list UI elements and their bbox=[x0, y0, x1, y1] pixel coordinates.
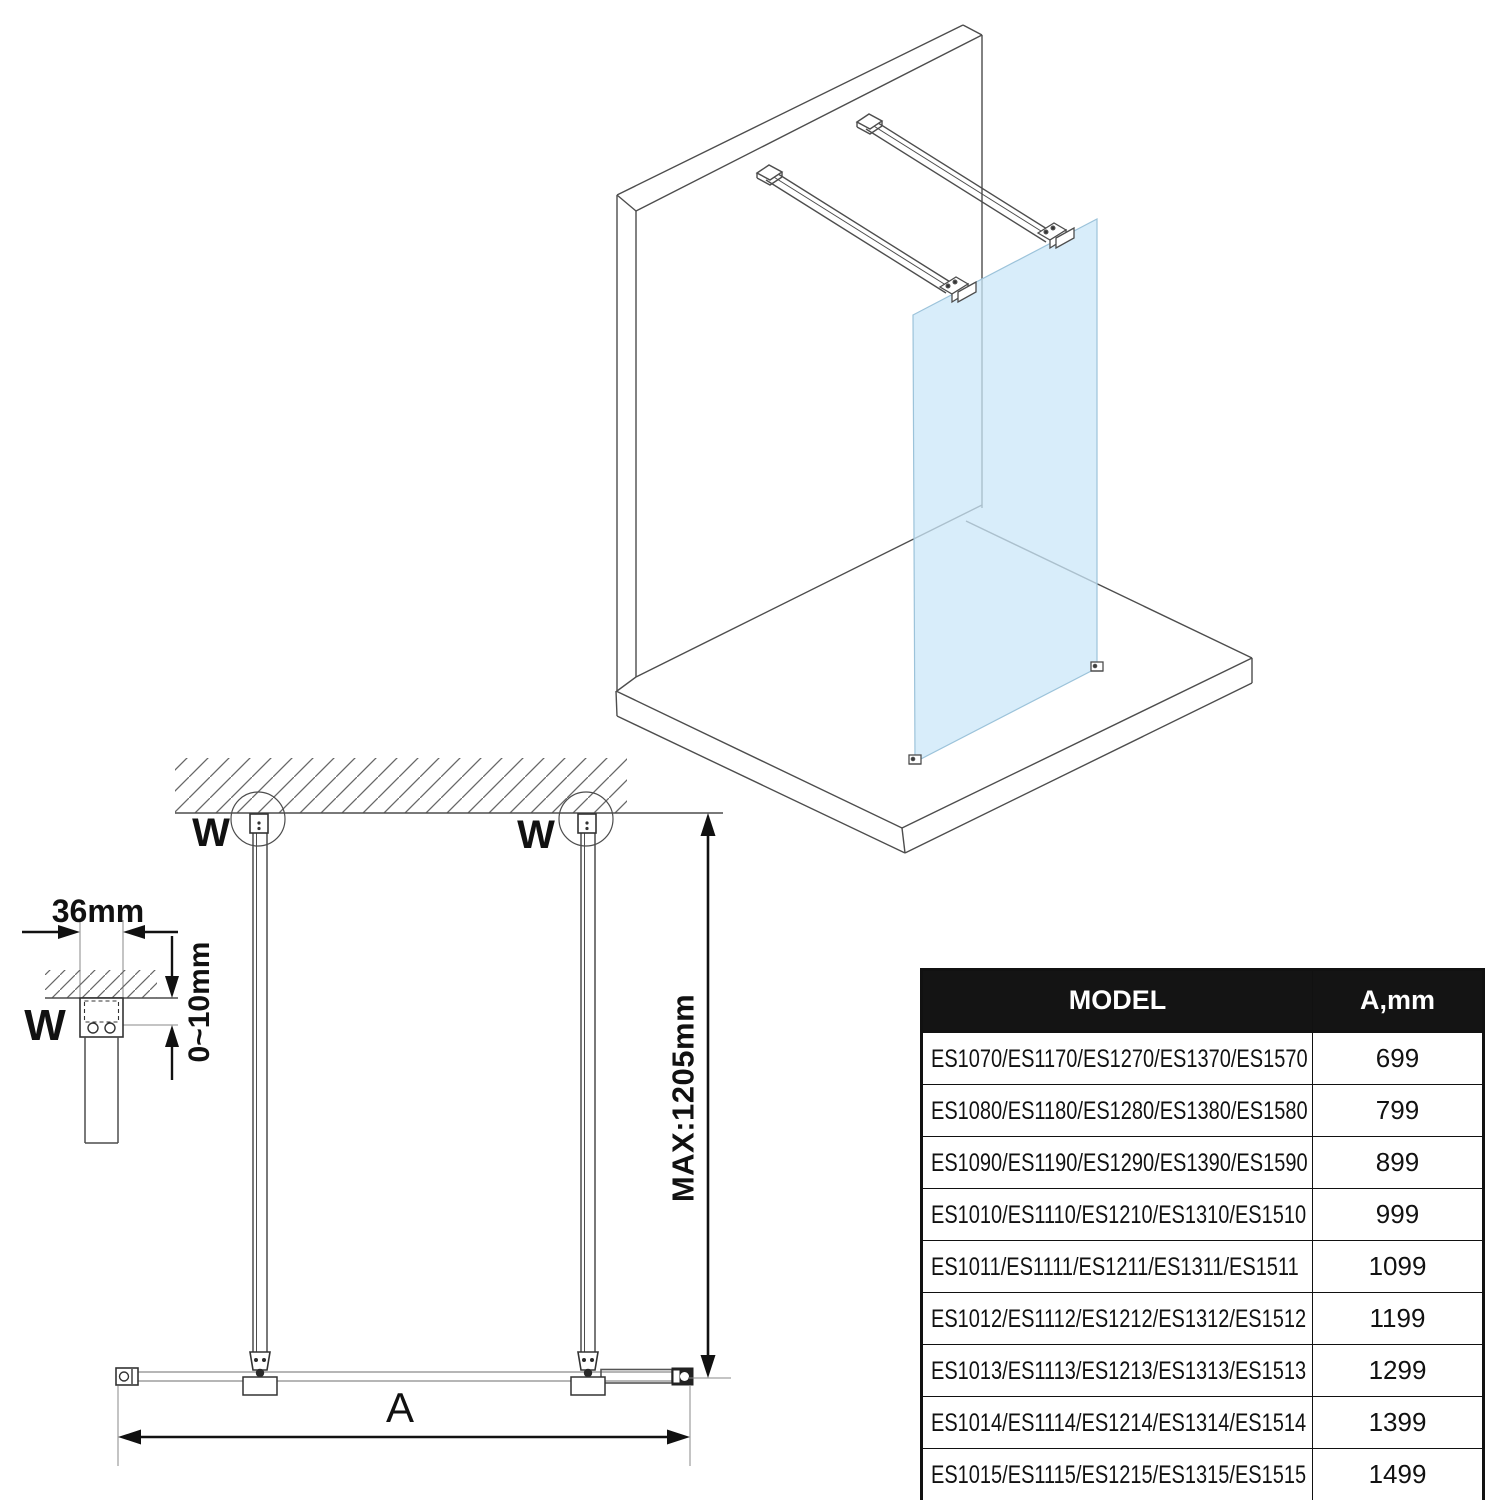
table-header-a-mm: A,mm bbox=[1313, 970, 1484, 1032]
wall-marker-detail: W bbox=[24, 1004, 66, 1048]
shower-screen-spec-sheet: W W W 36mm 0~10mm MAX:1205mm A MODEL A,m… bbox=[0, 0, 1500, 1500]
iso-glass-panel bbox=[913, 219, 1097, 762]
a-value-cell: 1099 bbox=[1313, 1241, 1484, 1293]
model-cell: ES1014/ES1114/ES1214/ES1314/ES1514 bbox=[922, 1397, 1313, 1449]
model-cell: ES1010/ES1110/ES1210/ES1310/ES1510 bbox=[922, 1189, 1313, 1241]
table-header-row: MODEL A,mm bbox=[922, 970, 1484, 1032]
table-row: ES1012/ES1112/ES1212/ES1312/ES1512 1199 bbox=[922, 1293, 1484, 1345]
model-cell: ES1070/ES1170/ES1270/ES1370/ES1570 bbox=[922, 1032, 1313, 1085]
plan-wall-hatch bbox=[175, 758, 627, 813]
plan-support-bar-1 bbox=[253, 833, 267, 1352]
table-row: ES1010/ES1110/ES1210/ES1310/ES1510 999 bbox=[922, 1189, 1484, 1241]
model-cell: ES1012/ES1112/ES1212/ES1312/ES1512 bbox=[922, 1293, 1313, 1345]
a-value-cell: 899 bbox=[1313, 1137, 1484, 1189]
detail-bar bbox=[85, 1037, 118, 1143]
detail-wall-hatch bbox=[45, 970, 157, 998]
detail-dim-gap bbox=[123, 936, 179, 1080]
model-cell: ES1015/ES1115/ES1215/ES1315/ES1515 bbox=[922, 1449, 1313, 1500]
dim-label-ceiling-gap: 0~10mm bbox=[185, 942, 215, 1063]
table-header-model: MODEL bbox=[922, 970, 1313, 1032]
model-cell: ES1080/ES1180/ES1280/ES1380/ES1580 bbox=[922, 1085, 1313, 1137]
model-cell: ES1013/ES1113/ES1213/ES1313/ES1513 bbox=[922, 1345, 1313, 1397]
model-cell: ES1090/ES1190/ES1290/ES1390/ES1590 bbox=[922, 1137, 1313, 1189]
plan-wall-bracket-2 bbox=[578, 814, 596, 833]
table-row: ES1080/ES1180/ES1280/ES1380/ES1580 799 bbox=[922, 1085, 1484, 1137]
plan-view bbox=[116, 758, 731, 1466]
a-value-cell: 799 bbox=[1313, 1085, 1484, 1137]
dim-label-width-A: A bbox=[386, 1387, 414, 1429]
iso-support-bar-near bbox=[757, 165, 951, 293]
table-row: ES1070/ES1170/ES1270/ES1370/ES1570 699 bbox=[922, 1032, 1484, 1085]
a-value-cell: 1399 bbox=[1313, 1397, 1484, 1449]
plan-support-bar-2 bbox=[581, 833, 595, 1352]
plan-left-end-cap bbox=[116, 1368, 138, 1385]
table-row: ES1090/ES1190/ES1290/ES1390/ES1590 899 bbox=[922, 1137, 1484, 1189]
plan-glass-clamp-1 bbox=[243, 1352, 277, 1395]
iso-view bbox=[616, 25, 1252, 853]
dim-label-max-height: MAX:1205mm bbox=[668, 994, 699, 1202]
iso-support-bar-far bbox=[857, 114, 1051, 242]
model-cell: ES1011/ES1111/ES1211/ES1311/ES1511 bbox=[922, 1241, 1313, 1293]
wall-marker-plan-1: W bbox=[192, 813, 230, 853]
a-value-cell: 999 bbox=[1313, 1189, 1484, 1241]
plan-wall-bracket-1 bbox=[250, 814, 268, 833]
table-row: ES1011/ES1111/ES1211/ES1311/ES1511 1099 bbox=[922, 1241, 1484, 1293]
model-size-table: MODEL A,mm ES1070/ES1170/ES1270/ES1370/E… bbox=[920, 968, 1485, 1500]
table-row: ES1015/ES1115/ES1215/ES1315/ES1515 1499 bbox=[922, 1449, 1484, 1500]
plan-glass-clamp-2 bbox=[571, 1352, 605, 1395]
table-row: ES1013/ES1113/ES1213/ES1313/ES1513 1299 bbox=[922, 1345, 1484, 1397]
detail-bracket bbox=[80, 998, 123, 1037]
a-value-cell: 1299 bbox=[1313, 1345, 1484, 1397]
a-value-cell: 1199 bbox=[1313, 1293, 1484, 1345]
a-value-cell: 699 bbox=[1313, 1032, 1484, 1085]
table-row: ES1014/ES1114/ES1214/ES1314/ES1514 1399 bbox=[922, 1397, 1484, 1449]
plan-right-end-cap bbox=[672, 1368, 693, 1385]
iso-floor-foot-right bbox=[1091, 662, 1103, 671]
dim-label-36mm: 36mm bbox=[52, 895, 145, 927]
a-value-cell: 1499 bbox=[1313, 1449, 1484, 1500]
iso-floor-foot-left bbox=[909, 755, 921, 764]
wall-marker-plan-2: W bbox=[517, 815, 555, 855]
